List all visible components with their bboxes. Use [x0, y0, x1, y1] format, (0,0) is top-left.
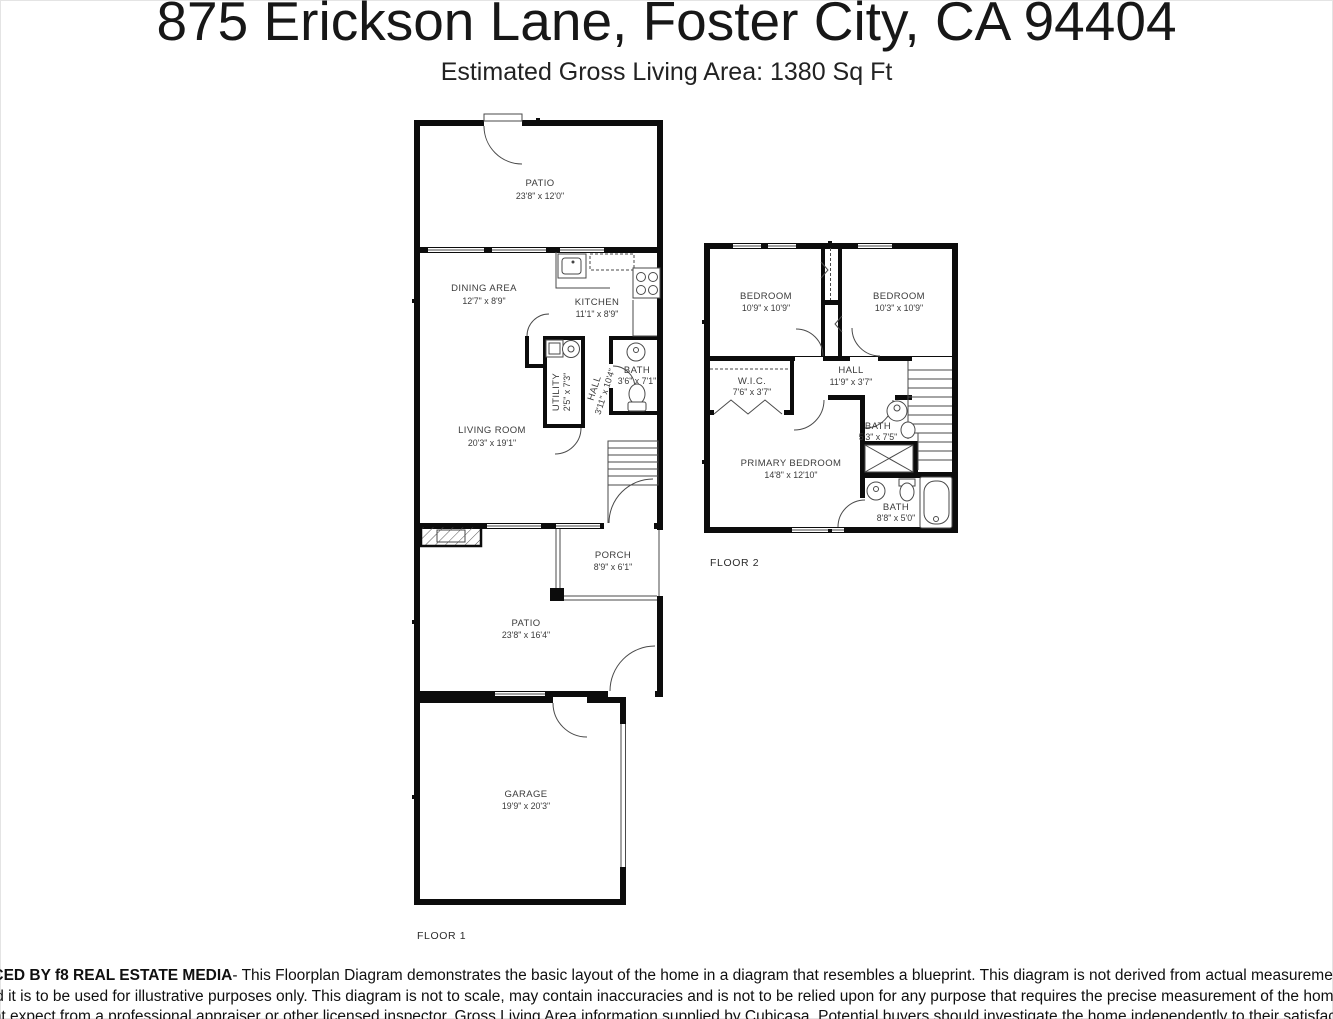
room-label-kitchen: KITCHEN 11'1" x 8'9" — [575, 297, 620, 319]
floor1-wall-ticks — [412, 118, 662, 904]
disclaimer-line-3: might expect from a professional apprais… — [0, 1007, 1333, 1019]
disclaimer-text-1: - This Floorplan Diagram demonstrates th… — [232, 966, 1333, 987]
room-label-dining: DINING AREA 12'7" x 8'9" — [451, 283, 517, 306]
svg-text:2'5" x 7'3": 2'5" x 7'3" — [562, 373, 572, 411]
svg-text:BATH: BATH — [865, 421, 891, 432]
svg-text:7'6" x 3'7": 7'6" x 3'7" — [733, 387, 771, 397]
svg-text:23'8" x 16'4": 23'8" x 16'4" — [502, 630, 550, 640]
room-label-bath-lower: BATH 8'8" x 5'0" — [877, 502, 915, 523]
svg-text:8'8" x 5'0": 8'8" x 5'0" — [877, 513, 915, 523]
room-label-living: LIVING ROOM 20'3" x 19'1" — [458, 425, 526, 448]
svg-text:PATIO: PATIO — [511, 618, 540, 629]
floor2-plan: BEDROOM 10'9" x 10'9" BEDROOM 10'3" x 10… — [702, 241, 958, 569]
svg-text:3'6" x 7'1": 3'6" x 7'1" — [618, 376, 656, 386]
floor1-label: FLOOR 1 — [417, 930, 466, 942]
room-name: PATIO — [525, 178, 554, 189]
disclaimer: PRODUCED BY f8 REAL ESTATE MEDIA - This … — [0, 966, 1333, 1019]
svg-text:W.I.C.: W.I.C. — [738, 376, 766, 387]
svg-text:UTILITY: UTILITY — [551, 373, 562, 411]
room-label-utility: UTILITY 2'5" x 7'3" — [551, 373, 572, 412]
room-label-patio-top: PATIO 23'8" x 12'0" — [516, 178, 564, 201]
disclaimer-line-1: PRODUCED BY f8 REAL ESTATE MEDIA - This … — [0, 966, 1333, 987]
room-label-bath-upper: BATH 5'3" x 7'5" — [859, 421, 897, 442]
room-label-wic: W.I.C. 7'6" x 3'7" — [733, 376, 771, 397]
floor2-label: FLOOR 2 — [710, 557, 759, 569]
svg-text:5'3" x 7'5": 5'3" x 7'5" — [859, 432, 897, 442]
room-label-bath1: BATH 3'6" x 7'1" — [618, 365, 656, 386]
svg-text:GARAGE: GARAGE — [504, 789, 547, 800]
svg-text:10'3" x 10'9": 10'3" x 10'9" — [875, 303, 923, 313]
svg-text:DINING AREA: DINING AREA — [451, 283, 517, 294]
room-dims: 23'8" x 12'0" — [516, 191, 564, 201]
svg-text:KITCHEN: KITCHEN — [575, 297, 620, 308]
svg-text:BATH: BATH — [624, 365, 650, 376]
room-label-porch: PORCH 8'9" x 6'1" — [594, 550, 632, 572]
floor1-stairs — [608, 441, 658, 523]
floor1-utility-fixtures — [546, 340, 580, 358]
room-label-primary-bedroom: PRIMARY BEDROOM 14'8" x 12'10" — [741, 458, 842, 480]
svg-text:14'8" x 12'10": 14'8" x 12'10" — [764, 470, 817, 480]
svg-text:10'9" x 10'9": 10'9" x 10'9" — [742, 303, 790, 313]
svg-text:11'9" x 3'7": 11'9" x 3'7" — [830, 377, 873, 387]
fireplace — [421, 526, 481, 546]
svg-text:BEDROOM: BEDROOM — [740, 291, 792, 302]
svg-text:12'7" x 8'9": 12'7" x 8'9" — [462, 296, 505, 306]
room-label-bedroom-left: BEDROOM 10'9" x 10'9" — [740, 291, 792, 313]
svg-text:PRIMARY BEDROOM: PRIMARY BEDROOM — [741, 458, 842, 469]
room-label-patio-bottom: PATIO 23'8" x 16'4" — [502, 618, 550, 640]
floor1-kitchen-fixtures — [556, 252, 660, 336]
svg-text:19'9" x 20'3": 19'9" x 20'3" — [502, 801, 550, 811]
svg-text:20'3" x 19'1": 20'3" x 19'1" — [468, 438, 516, 448]
room-label-garage: GARAGE 19'9" x 20'3" — [502, 789, 550, 811]
svg-text:BEDROOM: BEDROOM — [873, 291, 925, 302]
disclaimer-line-2: home, and it is to be used for illustrat… — [0, 987, 1333, 1008]
floorplan-diagram: PATIO 23'8" x 12'0" DINING AREA 12'7" x … — [0, 0, 1333, 1019]
room-label-bedroom-right: BEDROOM 10'3" x 10'9" — [873, 291, 925, 313]
room-label-hall2: HALL 11'9" x 3'7" — [830, 365, 873, 387]
svg-text:11'1" x 8'9": 11'1" x 8'9" — [576, 309, 619, 319]
svg-text:HALL: HALL — [838, 365, 863, 376]
svg-text:LIVING ROOM: LIVING ROOM — [458, 425, 526, 436]
svg-text:8'9" x 6'1": 8'9" x 6'1" — [594, 562, 632, 572]
produced-by-label: PRODUCED BY f8 REAL ESTATE MEDIA — [0, 966, 232, 987]
floor1-plan: PATIO 23'8" x 12'0" DINING AREA 12'7" x … — [412, 114, 663, 942]
svg-text:BATH: BATH — [883, 502, 909, 513]
svg-text:PORCH: PORCH — [595, 550, 631, 561]
